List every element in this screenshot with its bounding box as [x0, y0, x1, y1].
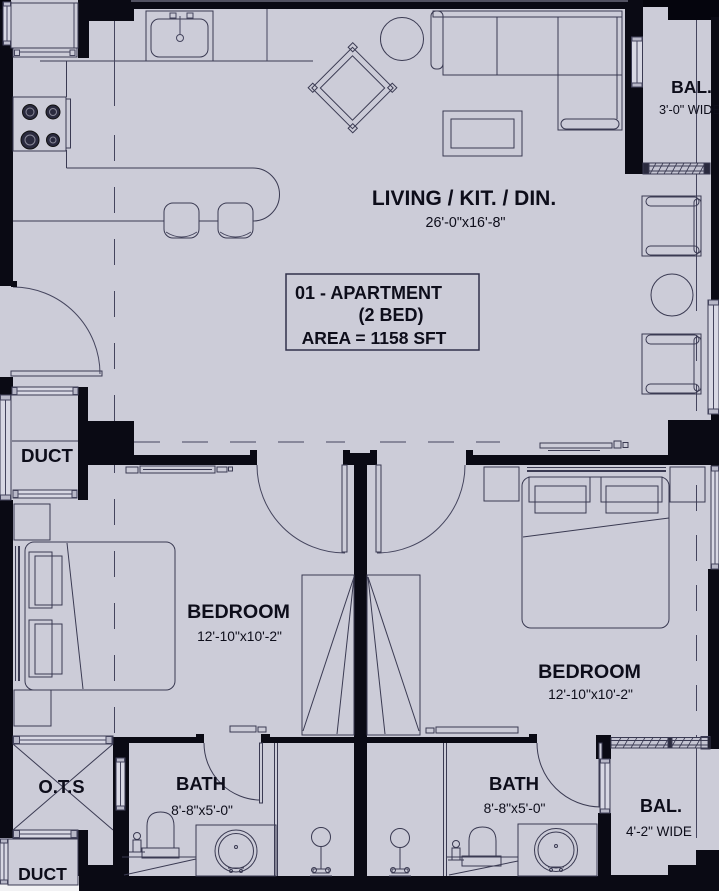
- svg-text:BATH: BATH: [176, 773, 226, 794]
- svg-text:LIVING / KIT. / DIN.: LIVING / KIT. / DIN.: [372, 187, 556, 210]
- svg-text:8'-8"x5'-0": 8'-8"x5'-0": [484, 801, 546, 816]
- svg-text:BAL.: BAL.: [671, 77, 712, 97]
- svg-text:DUCT: DUCT: [18, 864, 67, 884]
- svg-text:AREA = 1158 SFT: AREA = 1158 SFT: [302, 328, 447, 348]
- svg-text:O.T.S: O.T.S: [38, 776, 84, 797]
- svg-text:(2 BED): (2 BED): [358, 305, 423, 325]
- svg-text:12'-10"x10'-2": 12'-10"x10'-2": [548, 687, 633, 702]
- svg-text:26'-0"x16'-8": 26'-0"x16'-8": [426, 215, 506, 231]
- svg-text:3'-0" WIDE: 3'-0" WIDE: [659, 103, 719, 117]
- svg-text:4'-2" WIDE: 4'-2" WIDE: [626, 824, 692, 839]
- svg-text:01 - APARTMENT: 01 - APARTMENT: [295, 283, 442, 303]
- svg-text:DUCT: DUCT: [21, 445, 73, 466]
- svg-text:12'-10"x10'-2": 12'-10"x10'-2": [197, 629, 282, 644]
- svg-text:BAL.: BAL.: [640, 796, 682, 816]
- svg-text:BEDROOM: BEDROOM: [538, 661, 641, 683]
- svg-text:BEDROOM: BEDROOM: [187, 601, 290, 623]
- svg-text:8'-8"x5'-0": 8'-8"x5'-0": [171, 803, 233, 818]
- svg-text:BATH: BATH: [489, 773, 539, 794]
